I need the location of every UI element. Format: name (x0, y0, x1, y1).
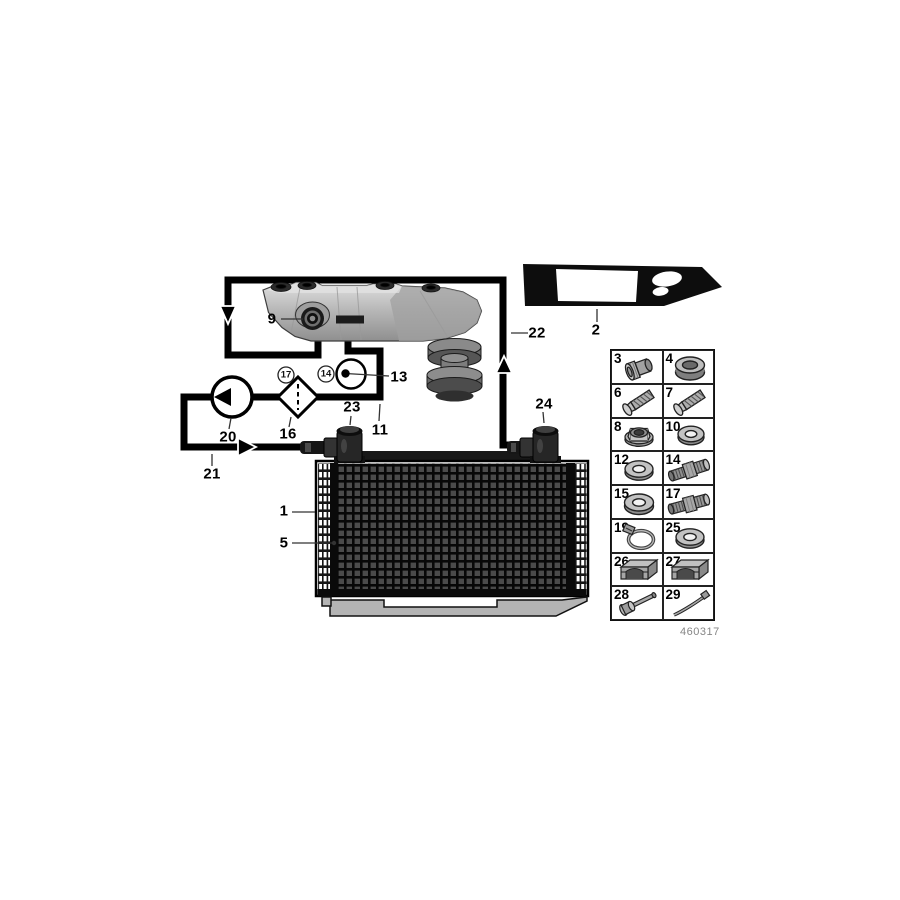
diagram-graphics (0, 0, 900, 900)
parts-cell-7[interactable]: 7 (663, 384, 715, 418)
washer-icon (616, 488, 662, 518)
parts-cell-8[interactable]: 8 (611, 418, 663, 452)
screw-icon (667, 387, 713, 417)
parts-cell-27[interactable]: 27 (663, 553, 715, 587)
callout-21[interactable]: 21 (203, 467, 220, 482)
parts-cell-28[interactable]: 28 (611, 586, 663, 620)
parts-cell-19[interactable]: 19 (611, 519, 663, 553)
callout-5[interactable]: 5 (280, 536, 289, 551)
parts-cell-15[interactable]: 15 (611, 485, 663, 519)
flow-arrow-up-icon (496, 356, 512, 373)
cable-clip-icon (667, 555, 713, 585)
callout-23[interactable]: 23 (343, 400, 360, 415)
parts-table: 3 4 6 (610, 349, 715, 621)
union-fitting-icon (667, 488, 713, 518)
callout-17-circled[interactable]: 17 (281, 370, 292, 380)
parts-cell-6[interactable]: 6 (611, 384, 663, 418)
parts-cell-3[interactable]: 3 (611, 350, 663, 384)
sealing-plug-icon (616, 353, 662, 383)
cooler-fins-left (318, 464, 331, 590)
parts-cell-10[interactable]: 10 (663, 418, 715, 452)
cable-tie-icon (667, 589, 713, 619)
pan-center-port (336, 316, 364, 324)
parts-cell-29[interactable]: 29 (663, 586, 715, 620)
callout-1[interactable]: 1 (280, 504, 289, 519)
hose-clamp-icon (616, 522, 662, 552)
flow-arrow-right-icon (238, 438, 256, 456)
expansion-rivet-icon (616, 589, 662, 619)
parts-cell-12[interactable]: 12 (611, 451, 663, 485)
grommet-ring-icon (667, 353, 713, 383)
parts-cell-4[interactable]: 4 (663, 350, 715, 384)
callout-11[interactable]: 11 (372, 423, 388, 438)
flow-arrow-down-icon (220, 306, 236, 324)
cable-clip-icon (616, 555, 662, 585)
screw-icon (616, 387, 662, 417)
pan-mount-stack (427, 339, 482, 402)
washer-icon (667, 522, 713, 552)
callout-13[interactable]: 13 (390, 370, 407, 385)
trim-panel-illustration (523, 264, 722, 306)
cooler-fitting-left (300, 426, 365, 463)
callout-16[interactable]: 16 (279, 427, 296, 442)
parts-cell-17[interactable]: 17 (663, 485, 715, 519)
figure-code: 460317 (680, 626, 720, 638)
callout-2[interactable]: 2 (592, 323, 601, 338)
parts-cell-14[interactable]: 14 (663, 451, 715, 485)
oil-cooler-illustration (316, 451, 588, 616)
cooler-core-mesh (338, 464, 566, 590)
parts-cell-25[interactable]: 25 (663, 519, 715, 553)
parts-diagram-canvas: 9 2 22 13 17 14 16 20 23 11 21 24 1 5 3 … (0, 0, 900, 900)
flange-nut-icon (616, 420, 662, 450)
callout-20[interactable]: 20 (219, 430, 236, 445)
union-fitting-icon (667, 454, 713, 484)
callout-22[interactable]: 22 (528, 326, 545, 341)
parts-cell-26[interactable]: 26 (611, 553, 663, 587)
callout-24[interactable]: 24 (535, 397, 552, 412)
cooler-bottom-tray (330, 597, 587, 616)
callout-9[interactable]: 9 (268, 312, 277, 327)
cooler-fins-right (575, 464, 587, 590)
oil-pump-symbol (212, 377, 252, 417)
callout-14-circled[interactable]: 14 (321, 369, 332, 379)
washer-icon (667, 420, 713, 450)
washer-icon (616, 454, 662, 484)
